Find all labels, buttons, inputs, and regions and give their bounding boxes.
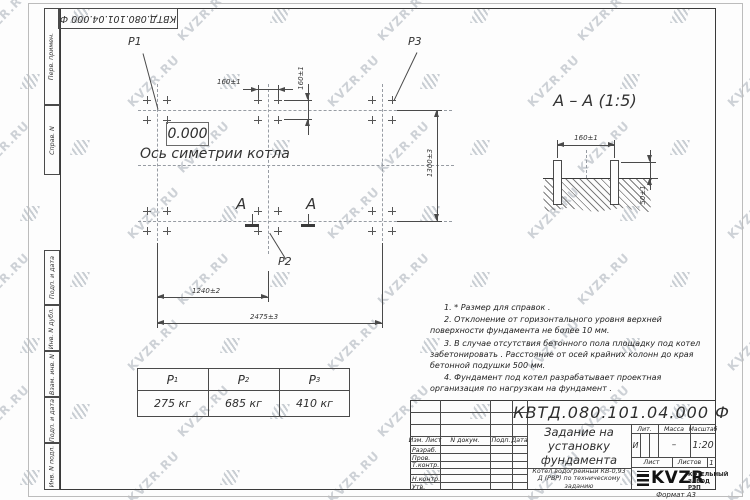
note-2: 2. Отклонение от горизонтального уровня … — [430, 314, 714, 336]
dim-line-bolt-h — [243, 89, 293, 90]
load-table-header-p1: P1 — [137, 369, 208, 390]
tb-sheet-label: Лист — [631, 459, 672, 466]
margin-field-vzam-inv: Взам. инв. N — [44, 351, 60, 397]
section-letter-right: A — [306, 200, 316, 208]
tb-mass-label: Масса — [658, 426, 690, 433]
anchor-bolt-cross — [388, 116, 396, 124]
section-letter-left: A — [236, 200, 246, 208]
tb-header-podp: Подп. — [490, 437, 512, 444]
anchor-bolt-cross — [143, 116, 151, 124]
anchor-bolt-cross — [368, 116, 376, 124]
dim-left-span: 1240±2 — [192, 287, 220, 295]
section-centerline — [586, 150, 587, 178]
anchor-bolt-cross — [163, 96, 171, 104]
anchor-bolt-cross — [143, 207, 151, 215]
tb-document-title: Задание на установку фундамента — [534, 424, 624, 468]
anchor-bolt-cross — [143, 227, 151, 235]
elevation-mark-box: 0.000 — [166, 122, 209, 146]
load-value-p2: 685 кг — [208, 391, 279, 416]
tb-company: КОТЕЛЬНЫЙ ЗАВОД РЭП — [688, 472, 718, 492]
anchor-bolt-cross — [388, 227, 396, 235]
anchor-bolt-cross — [254, 207, 262, 215]
tb-sheets-value: 1 — [707, 459, 716, 467]
anchor-bolt-cross — [163, 207, 171, 215]
point-label-p3: P3 — [408, 38, 422, 46]
drawing-sheet: KVZR.RUKVZR.RUKVZR.RUKVZR.RUKVZR.RUKVZR.… — [0, 0, 750, 500]
anchor-bolt-cross — [143, 96, 151, 104]
margin-field-podp-data-2: Подп. и дата — [44, 397, 60, 443]
note-4: 4. Фундамент под котел разрабатывает про… — [430, 372, 714, 394]
tb-sheets-label: Листов — [672, 459, 707, 466]
format-label: Формат А3 — [645, 491, 707, 499]
elevation-mark: 0.000 — [167, 126, 207, 142]
tb-row-nkontr: Н.контр. — [412, 476, 440, 483]
anchor-bolt-cross — [274, 207, 282, 215]
dim-line-section-spacing — [557, 145, 615, 146]
load-value-p3: 410 кг — [279, 391, 350, 416]
margin-field-inv-podl: Инв. N подл. — [44, 443, 60, 490]
tb-scale-label: Масштаб — [690, 426, 716, 433]
point-label-p1: P1 — [128, 38, 142, 46]
tb-scale-value: 1:20 — [690, 433, 716, 457]
margin-field-perv-primen: Перв. примен. — [44, 8, 60, 105]
anchor-bolt-left — [553, 160, 562, 205]
note-3: 3. В случае отсутствия бетонного пола пл… — [430, 338, 714, 372]
top-designation-text: КВТД.080.101.04.000 Ф — [60, 13, 176, 24]
tb-row-utv: Утв. — [412, 484, 425, 491]
symmetry-axis-label: Ось симетрии котла — [140, 146, 290, 162]
tb-row-prov: Пров. — [412, 455, 430, 462]
dim-line-total — [157, 323, 382, 324]
plan-axis-symmetry — [138, 165, 454, 166]
anchor-bolt-right — [610, 160, 619, 205]
dim-bolt-spacing-h: 160±1 — [217, 78, 255, 86]
dim-bolt-spacing-v: 160±1 — [296, 63, 306, 93]
margin-field-inv-dubl: Инв. N дубл. — [44, 305, 60, 351]
section-cut-mark-left — [245, 224, 259, 227]
load-table-header-p3: P3 — [279, 369, 350, 390]
anchor-bolt-cross — [368, 207, 376, 215]
margin-field-sprav-n: Справ. N — [44, 105, 60, 175]
anchor-bolt-cross — [254, 116, 262, 124]
kvzr-logo-icon — [637, 471, 649, 486]
margin-field-podp-data-1: Подп. и дата — [44, 250, 60, 305]
dim-line-bolt-v — [308, 84, 309, 135]
tb-header-izm-list: Изм. Лист — [410, 437, 440, 444]
dim-line-width — [437, 110, 438, 221]
dim-bolt-protrusion: 50±1 — [638, 180, 648, 210]
section-cut-mark-right — [301, 224, 315, 227]
anchor-bolt-cross — [274, 227, 282, 235]
tb-header-data: Дата — [512, 437, 527, 444]
top-designation-stamp: КВТД.080.101.04.000 Ф — [58, 8, 178, 29]
load-value-p1: 275 кг — [137, 391, 208, 416]
tb-row-razrab: Разраб. — [412, 447, 437, 454]
tb-lit-value: И — [631, 433, 640, 457]
note-1: 1. * Размер для справок . — [430, 302, 714, 313]
anchor-bolt-cross — [388, 207, 396, 215]
section-title: А – А (1:5) — [540, 97, 650, 105]
tb-lit-label: Лит. — [631, 426, 658, 433]
dim-line-left-span — [157, 297, 268, 298]
tb-mass-value: – — [658, 433, 690, 457]
load-table-header-p2: P2 — [208, 369, 279, 390]
anchor-bolt-cross — [368, 96, 376, 104]
plan-axis-col2 — [268, 84, 269, 254]
anchor-bolt-cross — [274, 116, 282, 124]
tb-row-tkontr: Т.контр. — [412, 462, 439, 469]
anchor-bolt-cross — [163, 227, 171, 235]
tb-header-ndokum: N докум. — [440, 437, 490, 444]
anchor-bolt-cross — [368, 227, 376, 235]
tb-product-subtitle: Котел водогрейный КВ-0,93 Д (РВР) по тех… — [531, 468, 627, 490]
dim-foundation-width: 1300±3 — [425, 148, 435, 178]
tb-designation: КВТД.080.101.04.000 Ф — [527, 400, 716, 424]
dim-section-spacing: 160±1 — [568, 134, 604, 142]
technical-notes: 1. * Размер для справок . 2. Отклонение … — [430, 302, 714, 396]
anchor-bolt-cross — [254, 227, 262, 235]
dim-total-length: 2475±3 — [250, 313, 278, 321]
plan-axis-col3 — [382, 84, 383, 246]
